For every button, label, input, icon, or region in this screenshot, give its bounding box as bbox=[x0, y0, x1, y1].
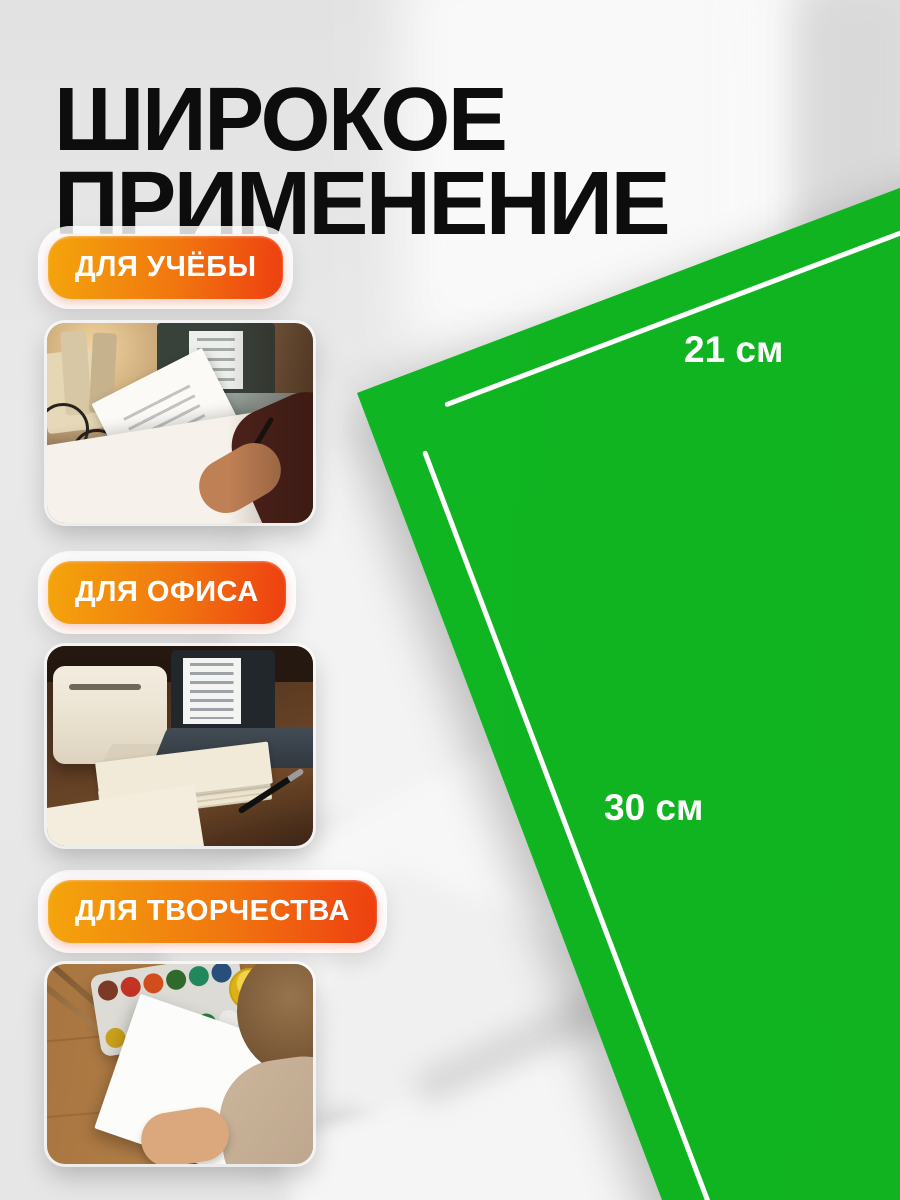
badge-creativity-label: ДЛЯ ТВОРЧЕСТВА bbox=[48, 880, 377, 943]
product-infographic: 21 см 30 см ШИРОКОЕ ПРИМЕНЕНИЕ ДЛЯ УЧЁБЫ… bbox=[0, 0, 900, 1200]
right-shadow-overlay bbox=[47, 323, 313, 523]
photo-study bbox=[47, 323, 313, 523]
photo-office bbox=[47, 646, 313, 846]
badge-office-label: ДЛЯ ОФИСА bbox=[48, 561, 286, 624]
document-on-screen bbox=[183, 658, 241, 724]
sheet-height-label: 30 см bbox=[604, 787, 703, 829]
sheet-width-label: 21 см bbox=[684, 329, 783, 371]
badge-office: ДЛЯ ОФИСА bbox=[38, 551, 296, 634]
badge-creativity: ДЛЯ ТВОРЧЕСТВА bbox=[38, 870, 387, 953]
laptop-screen-shape bbox=[171, 650, 275, 732]
badge-study-label: ДЛЯ УЧЁБЫ bbox=[48, 236, 283, 299]
badge-study: ДЛЯ УЧЁБЫ bbox=[38, 226, 293, 309]
photo-creativity bbox=[47, 964, 313, 1164]
page-title-line1: ШИРОКОЕ bbox=[54, 78, 668, 162]
printer-slot-shape bbox=[69, 684, 141, 690]
page-title: ШИРОКОЕ ПРИМЕНЕНИЕ bbox=[54, 78, 668, 246]
